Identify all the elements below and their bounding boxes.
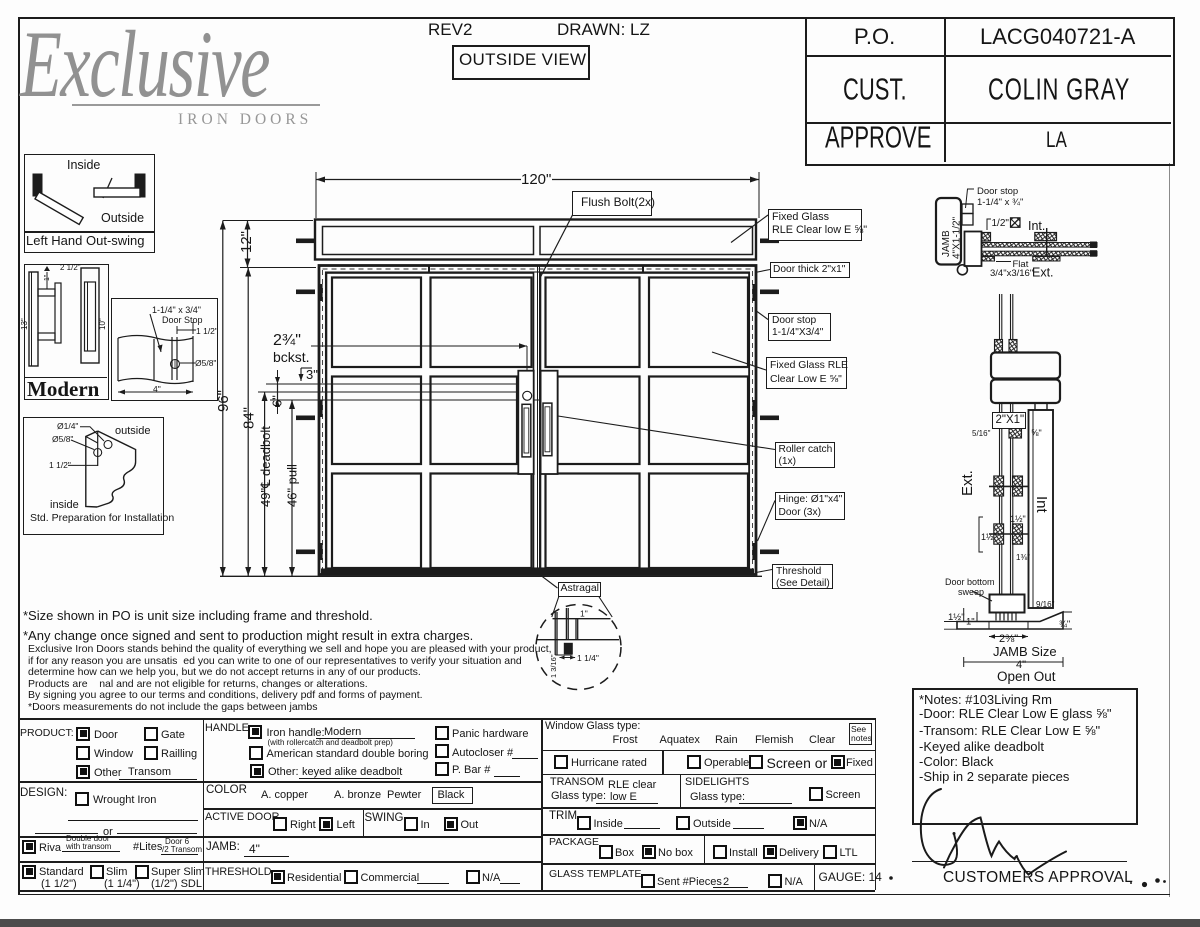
svg-text:¾": ¾" bbox=[1059, 619, 1070, 630]
svg-text:bckst.: bckst. bbox=[273, 349, 310, 365]
svg-text:12": 12" bbox=[238, 231, 255, 253]
svg-text:Ext.: Ext. bbox=[959, 470, 976, 496]
svg-text:1": 1" bbox=[966, 617, 975, 628]
svg-text:1 1/4": 1 1/4" bbox=[577, 653, 599, 663]
svg-text:120": 120" bbox=[521, 171, 551, 188]
svg-text:4"X1-1/2": 4"X1-1/2" bbox=[952, 216, 963, 259]
svg-text:9/16": 9/16" bbox=[1036, 600, 1055, 609]
svg-text:46" pull: 46" pull bbox=[285, 464, 300, 507]
svg-text:Int: Int bbox=[1033, 496, 1050, 514]
svg-text:1½": 1½" bbox=[948, 612, 965, 623]
svg-text:1/2": 1/2" bbox=[992, 218, 1010, 229]
svg-text:6": 6" bbox=[270, 395, 285, 407]
svg-text:JAMB Size: JAMB Size bbox=[993, 644, 1057, 659]
svg-text:1-1/4" x ¾": 1-1/4" x ¾" bbox=[977, 197, 1023, 208]
svg-text:1": 1" bbox=[580, 609, 588, 619]
svg-text:sweep: sweep bbox=[958, 587, 984, 597]
svg-text:1⅜": 1⅜" bbox=[1016, 553, 1030, 562]
svg-text:1": 1" bbox=[44, 274, 51, 281]
svg-text:84": 84" bbox=[241, 407, 258, 429]
svg-text:5/16": 5/16" bbox=[972, 429, 991, 438]
svg-text:10": 10" bbox=[98, 318, 107, 330]
svg-text:Door bottom: Door bottom bbox=[945, 577, 995, 587]
svg-text:1½": 1½" bbox=[1010, 514, 1026, 524]
svg-text:Ext.: Ext. bbox=[1032, 266, 1054, 280]
svg-text:JAMB: JAMB bbox=[941, 230, 952, 257]
svg-text:49"℄ deadbolt: 49"℄ deadbolt bbox=[258, 426, 273, 507]
svg-text:96": 96" bbox=[215, 390, 232, 412]
svg-text:1 3/16": 1 3/16" bbox=[549, 654, 558, 678]
svg-text:Open Out: Open Out bbox=[997, 669, 1056, 684]
svg-text:⅝": ⅝" bbox=[1031, 428, 1042, 438]
svg-text:2 1/2": 2 1/2" bbox=[60, 263, 81, 272]
svg-text:Door stop: Door stop bbox=[977, 186, 1018, 197]
svg-text:3/4"x3/16": 3/4"x3/16" bbox=[990, 268, 1033, 279]
svg-text:1½": 1½" bbox=[981, 532, 997, 542]
svg-text:Int.: Int. bbox=[1028, 219, 1045, 233]
svg-text:13": 13" bbox=[20, 318, 29, 330]
svg-text:3": 3" bbox=[306, 367, 318, 382]
svg-text:2¾": 2¾" bbox=[273, 332, 301, 349]
